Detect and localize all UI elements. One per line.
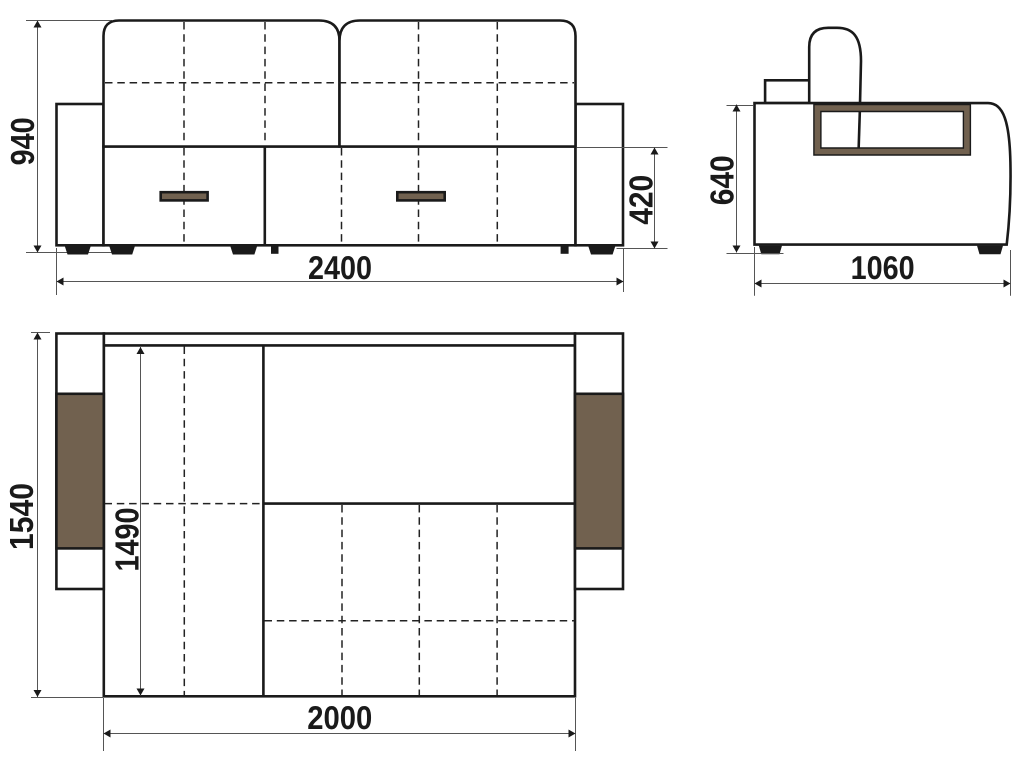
svg-text:1540: 1540: [3, 483, 40, 550]
svg-text:1060: 1060: [851, 249, 915, 286]
svg-text:640: 640: [703, 155, 740, 205]
svg-text:420: 420: [622, 175, 659, 225]
svg-text:2400: 2400: [308, 249, 372, 286]
svg-text:2000: 2000: [307, 699, 372, 736]
svg-text:1490: 1490: [108, 508, 145, 572]
svg-text:940: 940: [4, 117, 41, 165]
